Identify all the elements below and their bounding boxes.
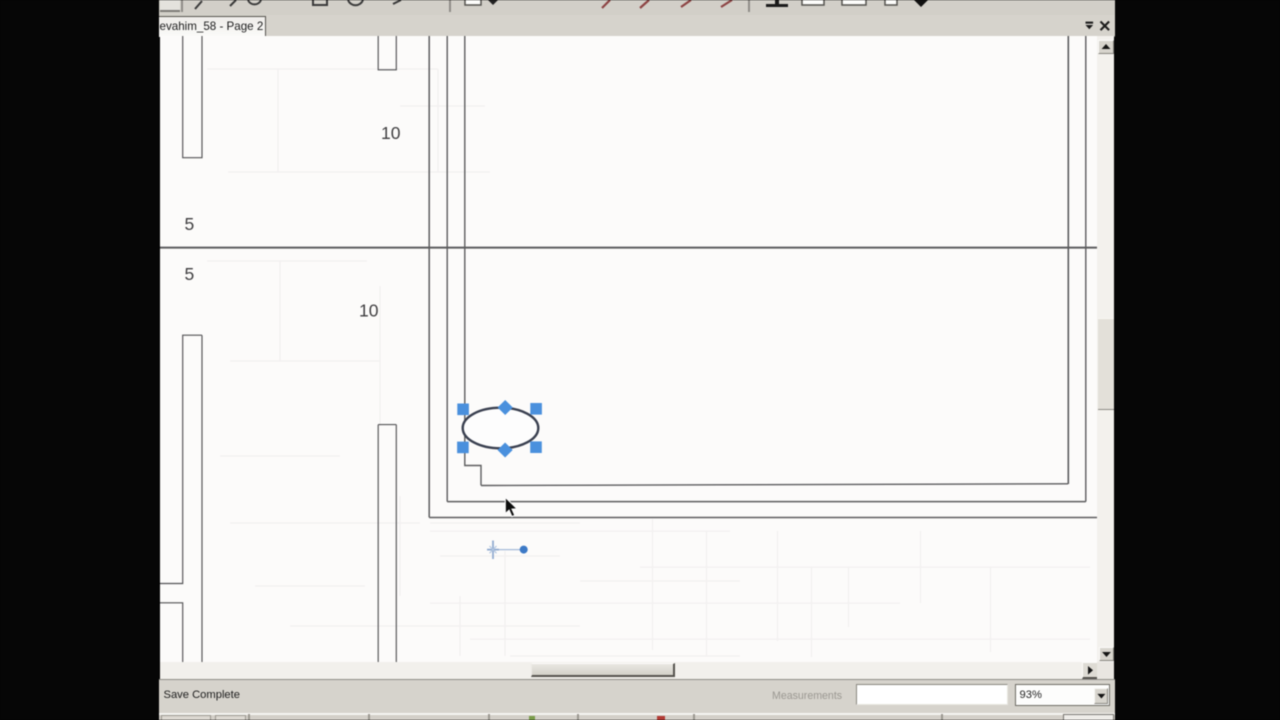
svg-text:5: 5: [184, 214, 194, 234]
svg-text:5: 5: [184, 264, 194, 284]
svg-text:10: 10: [381, 123, 401, 143]
svg-text:10: 10: [359, 300, 379, 320]
